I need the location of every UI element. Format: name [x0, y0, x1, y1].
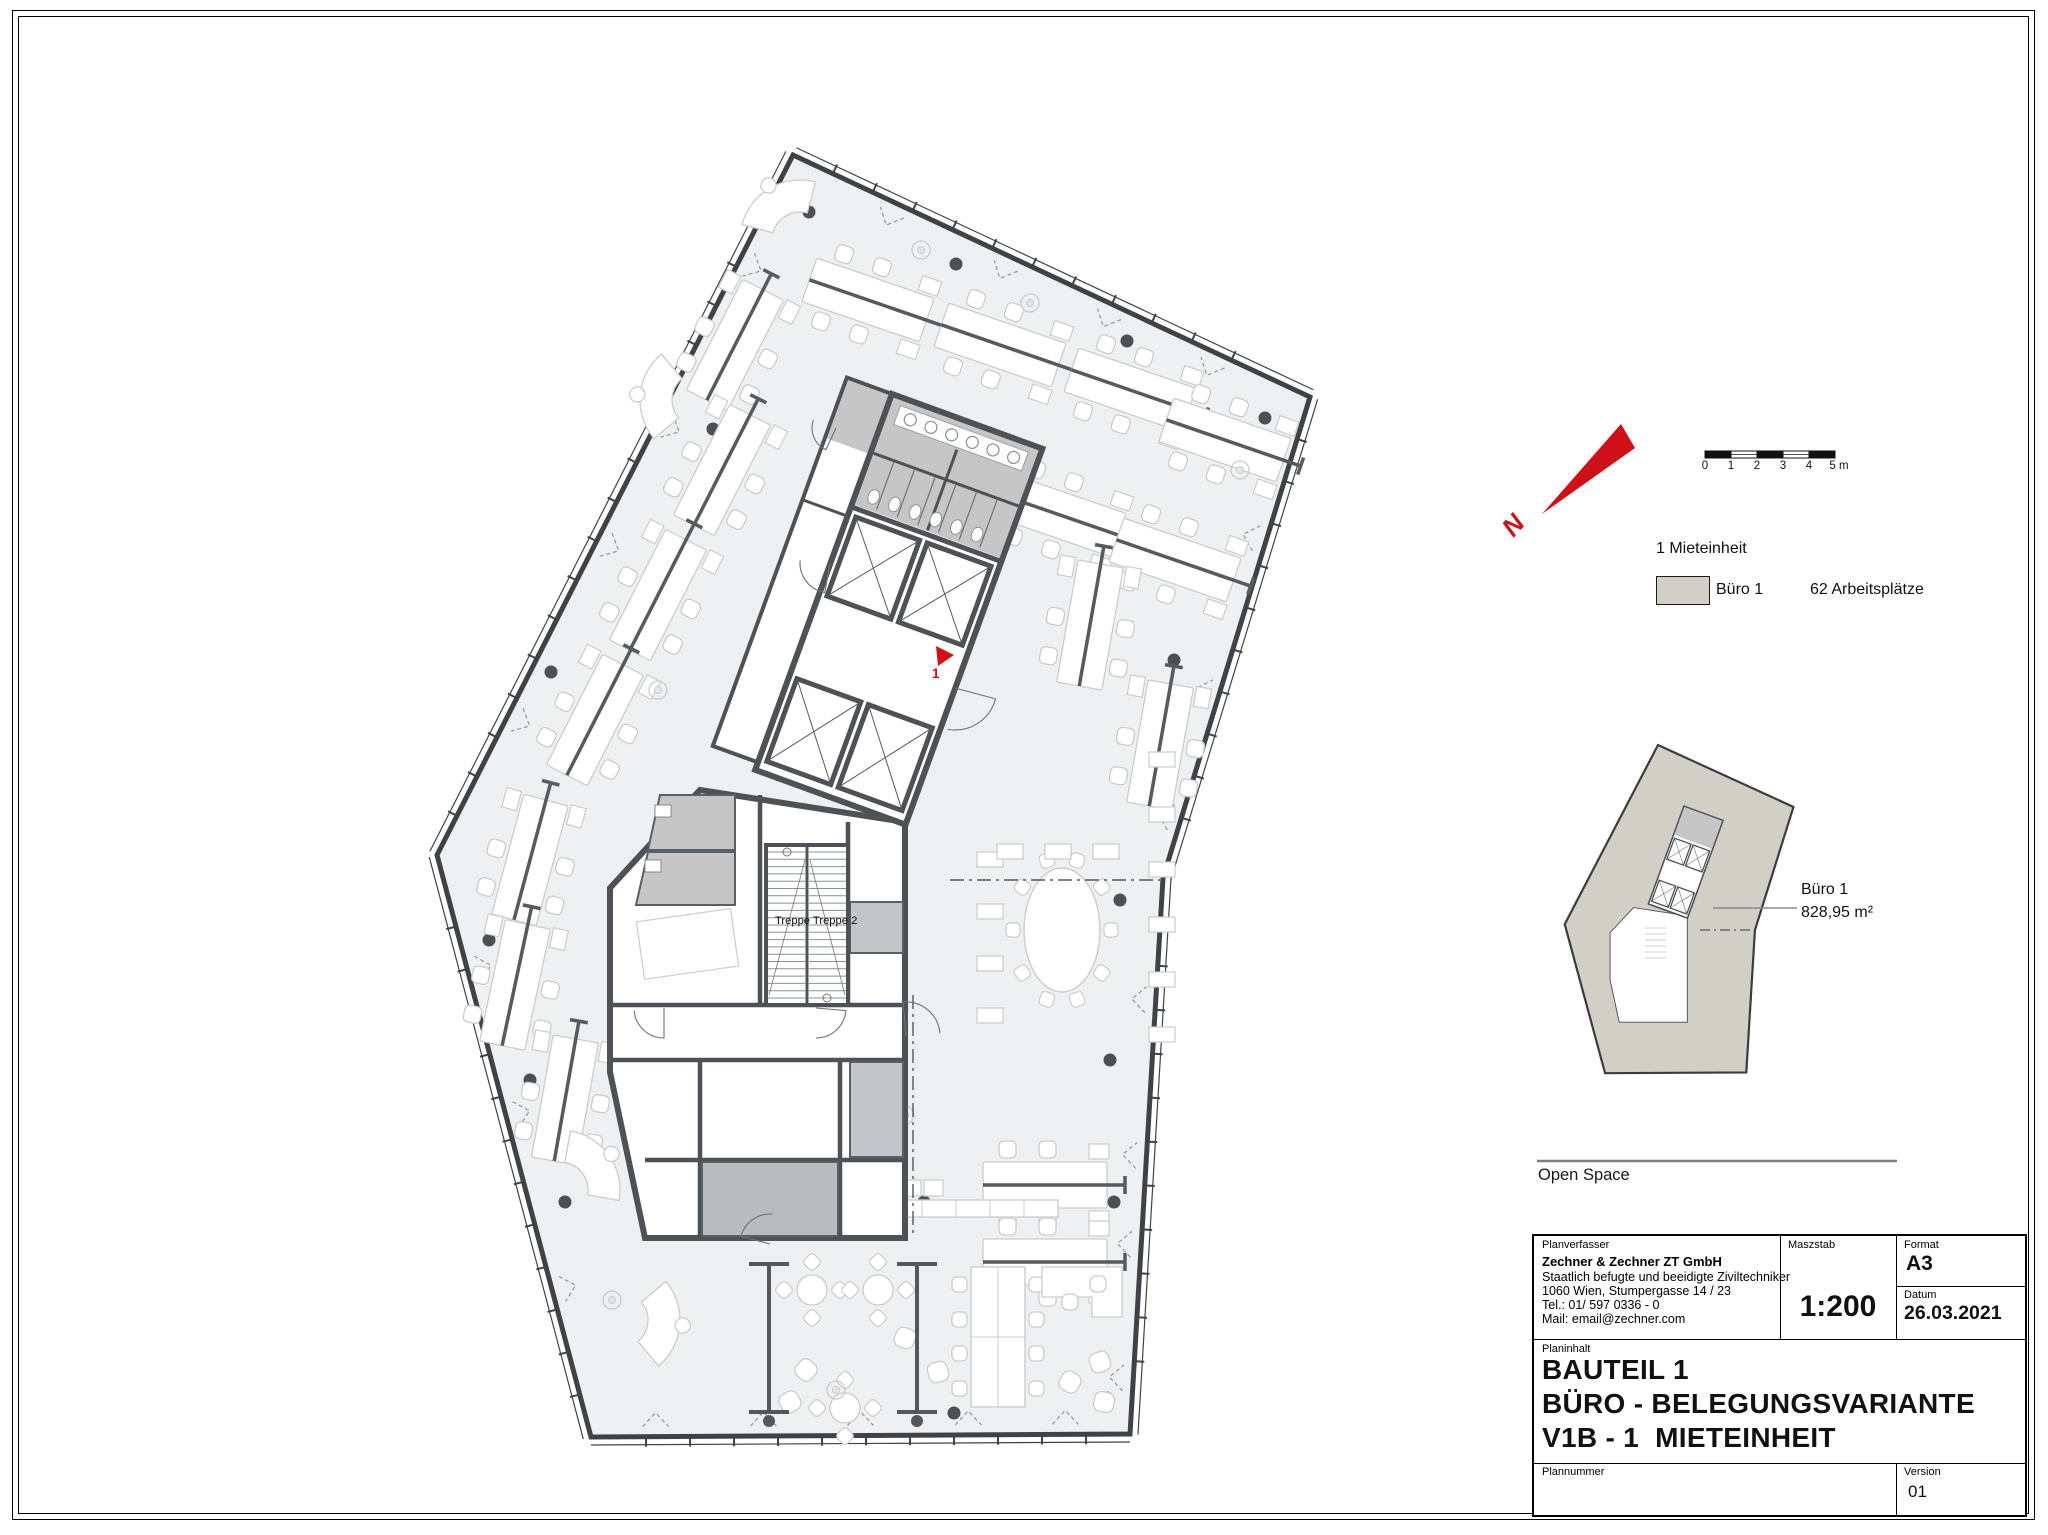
legend-item-workplaces: 62 Arbeitsplätze [1810, 581, 1924, 599]
scalebar-tick-0: 0 [1694, 460, 1716, 472]
shelf [1149, 807, 1175, 822]
scalebar-tick-1: 1 [1720, 460, 1742, 472]
open-space-label: Open Space [1538, 1166, 1630, 1185]
format-value: A3 [1906, 1252, 1933, 1276]
company-phone: Tel.: 01/ 597 0336 - 0 [1542, 1298, 1659, 1312]
shelf [1149, 1027, 1175, 1042]
counter-unit [924, 1180, 943, 1196]
core-lower [610, 790, 940, 1244]
datum-label: Datum [1904, 1289, 1936, 1301]
shelf [1149, 862, 1175, 877]
planverfasser-label: Planverfasser [1542, 1239, 1609, 1251]
datum-value: 26.03.2021 [1904, 1302, 2002, 1325]
plan-title-line3: V1B - 1 MIETEINHEIT [1542, 1422, 1836, 1454]
main-floor-plan [429, 148, 1317, 1447]
version-label: Version [1904, 1466, 1941, 1478]
scalebar-tick-2: 2 [1746, 460, 1768, 472]
scale-value: 1:200 [1780, 1290, 1896, 1324]
shelf [997, 844, 1023, 859]
format-label: Format [1904, 1239, 1939, 1251]
shelf [977, 904, 1003, 919]
shelf [1045, 844, 1071, 859]
company-address: 1060 Wien, Stumpergasse 14 / 23 [1542, 1284, 1731, 1298]
company-name: Zechner & Zechner ZT GmbH [1542, 1255, 1722, 1269]
plan-sheet: { "colors":{"red":"#cf1016","floor":"#ef… [0, 0, 2048, 1535]
maszstab-label: Maszstab [1788, 1239, 1835, 1251]
key-plan [1565, 745, 1797, 1073]
shelf [977, 1008, 1003, 1023]
lounge-chair [1092, 1390, 1115, 1413]
keyplan-unit-label: Büro 1 [1801, 881, 1848, 899]
scalebar-tick-3: 3 [1772, 460, 1794, 472]
shelf [1149, 972, 1175, 987]
plannummer-label: Plannummer [1542, 1466, 1604, 1478]
plan-title-line1: BAUTEIL 1 [1542, 1354, 1689, 1386]
plan-title-line2: BÜRO - BELEGUNGSVARIANTE [1542, 1388, 1975, 1420]
title-block: Planverfasser Zechner & Zechner ZT GmbH … [1532, 1234, 2027, 1517]
legend-item-label: Büro 1 [1716, 581, 1763, 599]
legend-title: 1 Mieteinheit [1656, 540, 1747, 558]
shelf [1149, 752, 1175, 767]
scalebar-tick-4: 4 [1798, 460, 1820, 472]
shelf [1149, 917, 1175, 932]
scale-bar [1705, 451, 1835, 458]
north-arrow [1542, 424, 1635, 514]
legend-swatch-buero1 [1656, 576, 1710, 605]
stairs-label: Treppe Treppe 2 [775, 915, 857, 927]
unit-marker-label: 1 [932, 666, 940, 681]
company-line2: Staatlich befugte und beeidigte Ziviltec… [1542, 1270, 1790, 1284]
shelf [977, 956, 1003, 971]
shelf [1093, 844, 1119, 859]
keyplan-area-value: 828,95 m² [1801, 904, 1873, 922]
scalebar-tick-5: 5 m [1822, 460, 1856, 472]
version-value: 01 [1908, 1482, 1927, 1502]
company-mail: Mail: email@zechner.com [1542, 1312, 1685, 1326]
